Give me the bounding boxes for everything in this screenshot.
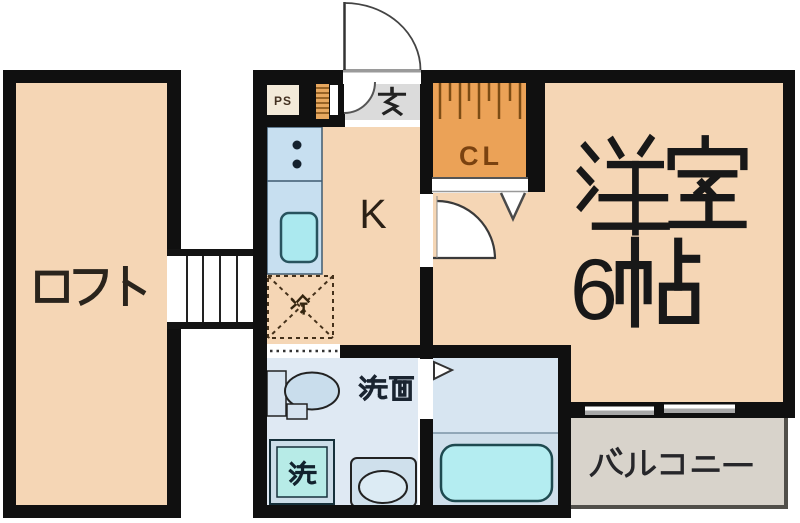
svg-text:CL: CL — [459, 141, 503, 171]
svg-text:6: 6 — [570, 242, 618, 338]
svg-text:K: K — [359, 191, 386, 237]
svg-text:PS: PS — [274, 94, 292, 108]
